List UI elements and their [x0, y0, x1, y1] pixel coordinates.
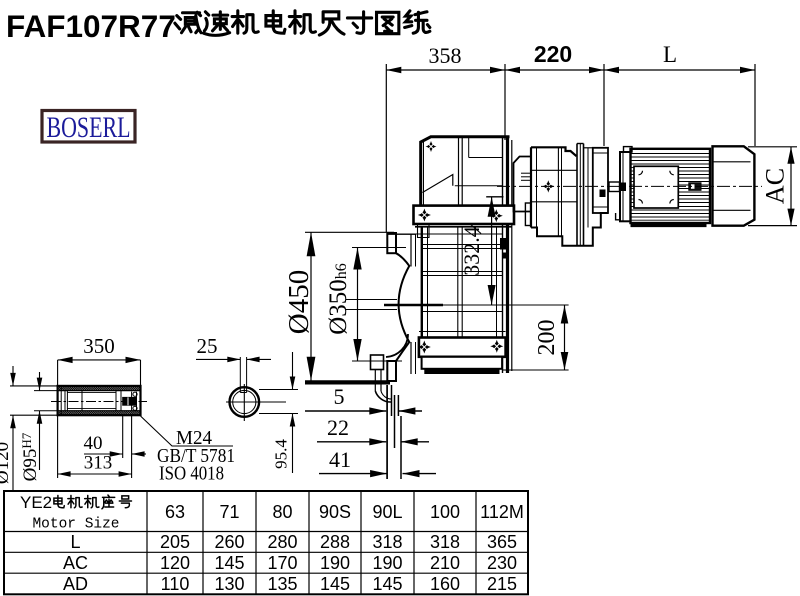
svg-text:160: 160	[430, 574, 460, 594]
svg-text:63: 63	[165, 502, 185, 522]
svg-text:318: 318	[430, 532, 460, 552]
svg-text:Ø450: Ø450	[283, 270, 315, 334]
svg-text:25: 25	[197, 334, 218, 358]
svg-text:130: 130	[214, 574, 244, 594]
svg-text:110: 110	[161, 574, 190, 594]
svg-text:145: 145	[320, 574, 350, 594]
svg-text:200: 200	[534, 320, 560, 356]
svg-text:95.4: 95.4	[272, 439, 291, 469]
svg-text:350: 350	[83, 334, 115, 358]
svg-text:205: 205	[160, 532, 190, 552]
svg-text:145: 145	[372, 574, 402, 594]
svg-text:AC: AC	[63, 553, 88, 573]
svg-text:L: L	[663, 42, 677, 67]
svg-text:318: 318	[372, 532, 402, 552]
svg-text:120: 120	[160, 553, 190, 573]
svg-text:AC: AC	[761, 168, 790, 204]
svg-text:ISO 4018: ISO 4018	[159, 463, 224, 485]
svg-text:135: 135	[267, 574, 297, 594]
svg-text:FAF107R77: FAF107R77	[6, 8, 176, 44]
svg-text:90L: 90L	[372, 502, 402, 522]
svg-text:90S: 90S	[319, 502, 351, 522]
svg-text:332.4: 332.4	[459, 226, 484, 276]
svg-text:80: 80	[272, 502, 292, 522]
svg-text:71: 71	[219, 502, 239, 522]
svg-text:112M: 112M	[480, 502, 524, 522]
svg-text:288: 288	[320, 532, 350, 552]
svg-text:215: 215	[487, 574, 517, 594]
svg-text:41: 41	[329, 447, 351, 472]
svg-text:358: 358	[429, 43, 462, 68]
svg-text:100: 100	[430, 502, 460, 522]
svg-text:AD: AD	[63, 574, 88, 594]
svg-text:170: 170	[267, 553, 297, 573]
svg-text:210: 210	[430, 553, 460, 573]
svg-text:Motor Size: Motor Size	[32, 517, 119, 533]
svg-text:BOSERL: BOSERL	[47, 111, 131, 144]
svg-text:40: 40	[84, 433, 103, 454]
svg-text:5: 5	[334, 384, 345, 409]
svg-text:190: 190	[372, 553, 402, 573]
svg-text:280: 280	[267, 532, 297, 552]
svg-text:230: 230	[487, 553, 517, 573]
svg-text:260: 260	[214, 532, 244, 552]
svg-text:365: 365	[487, 532, 517, 552]
svg-text:145: 145	[214, 553, 244, 573]
svg-text:190: 190	[320, 553, 350, 573]
svg-text:22: 22	[327, 415, 349, 440]
svg-text:L: L	[70, 532, 80, 552]
svg-text:Ø120: Ø120	[0, 442, 13, 484]
svg-text:YE2: YE2	[20, 493, 52, 512]
svg-text:313: 313	[84, 453, 113, 474]
svg-text:220: 220	[534, 41, 572, 67]
